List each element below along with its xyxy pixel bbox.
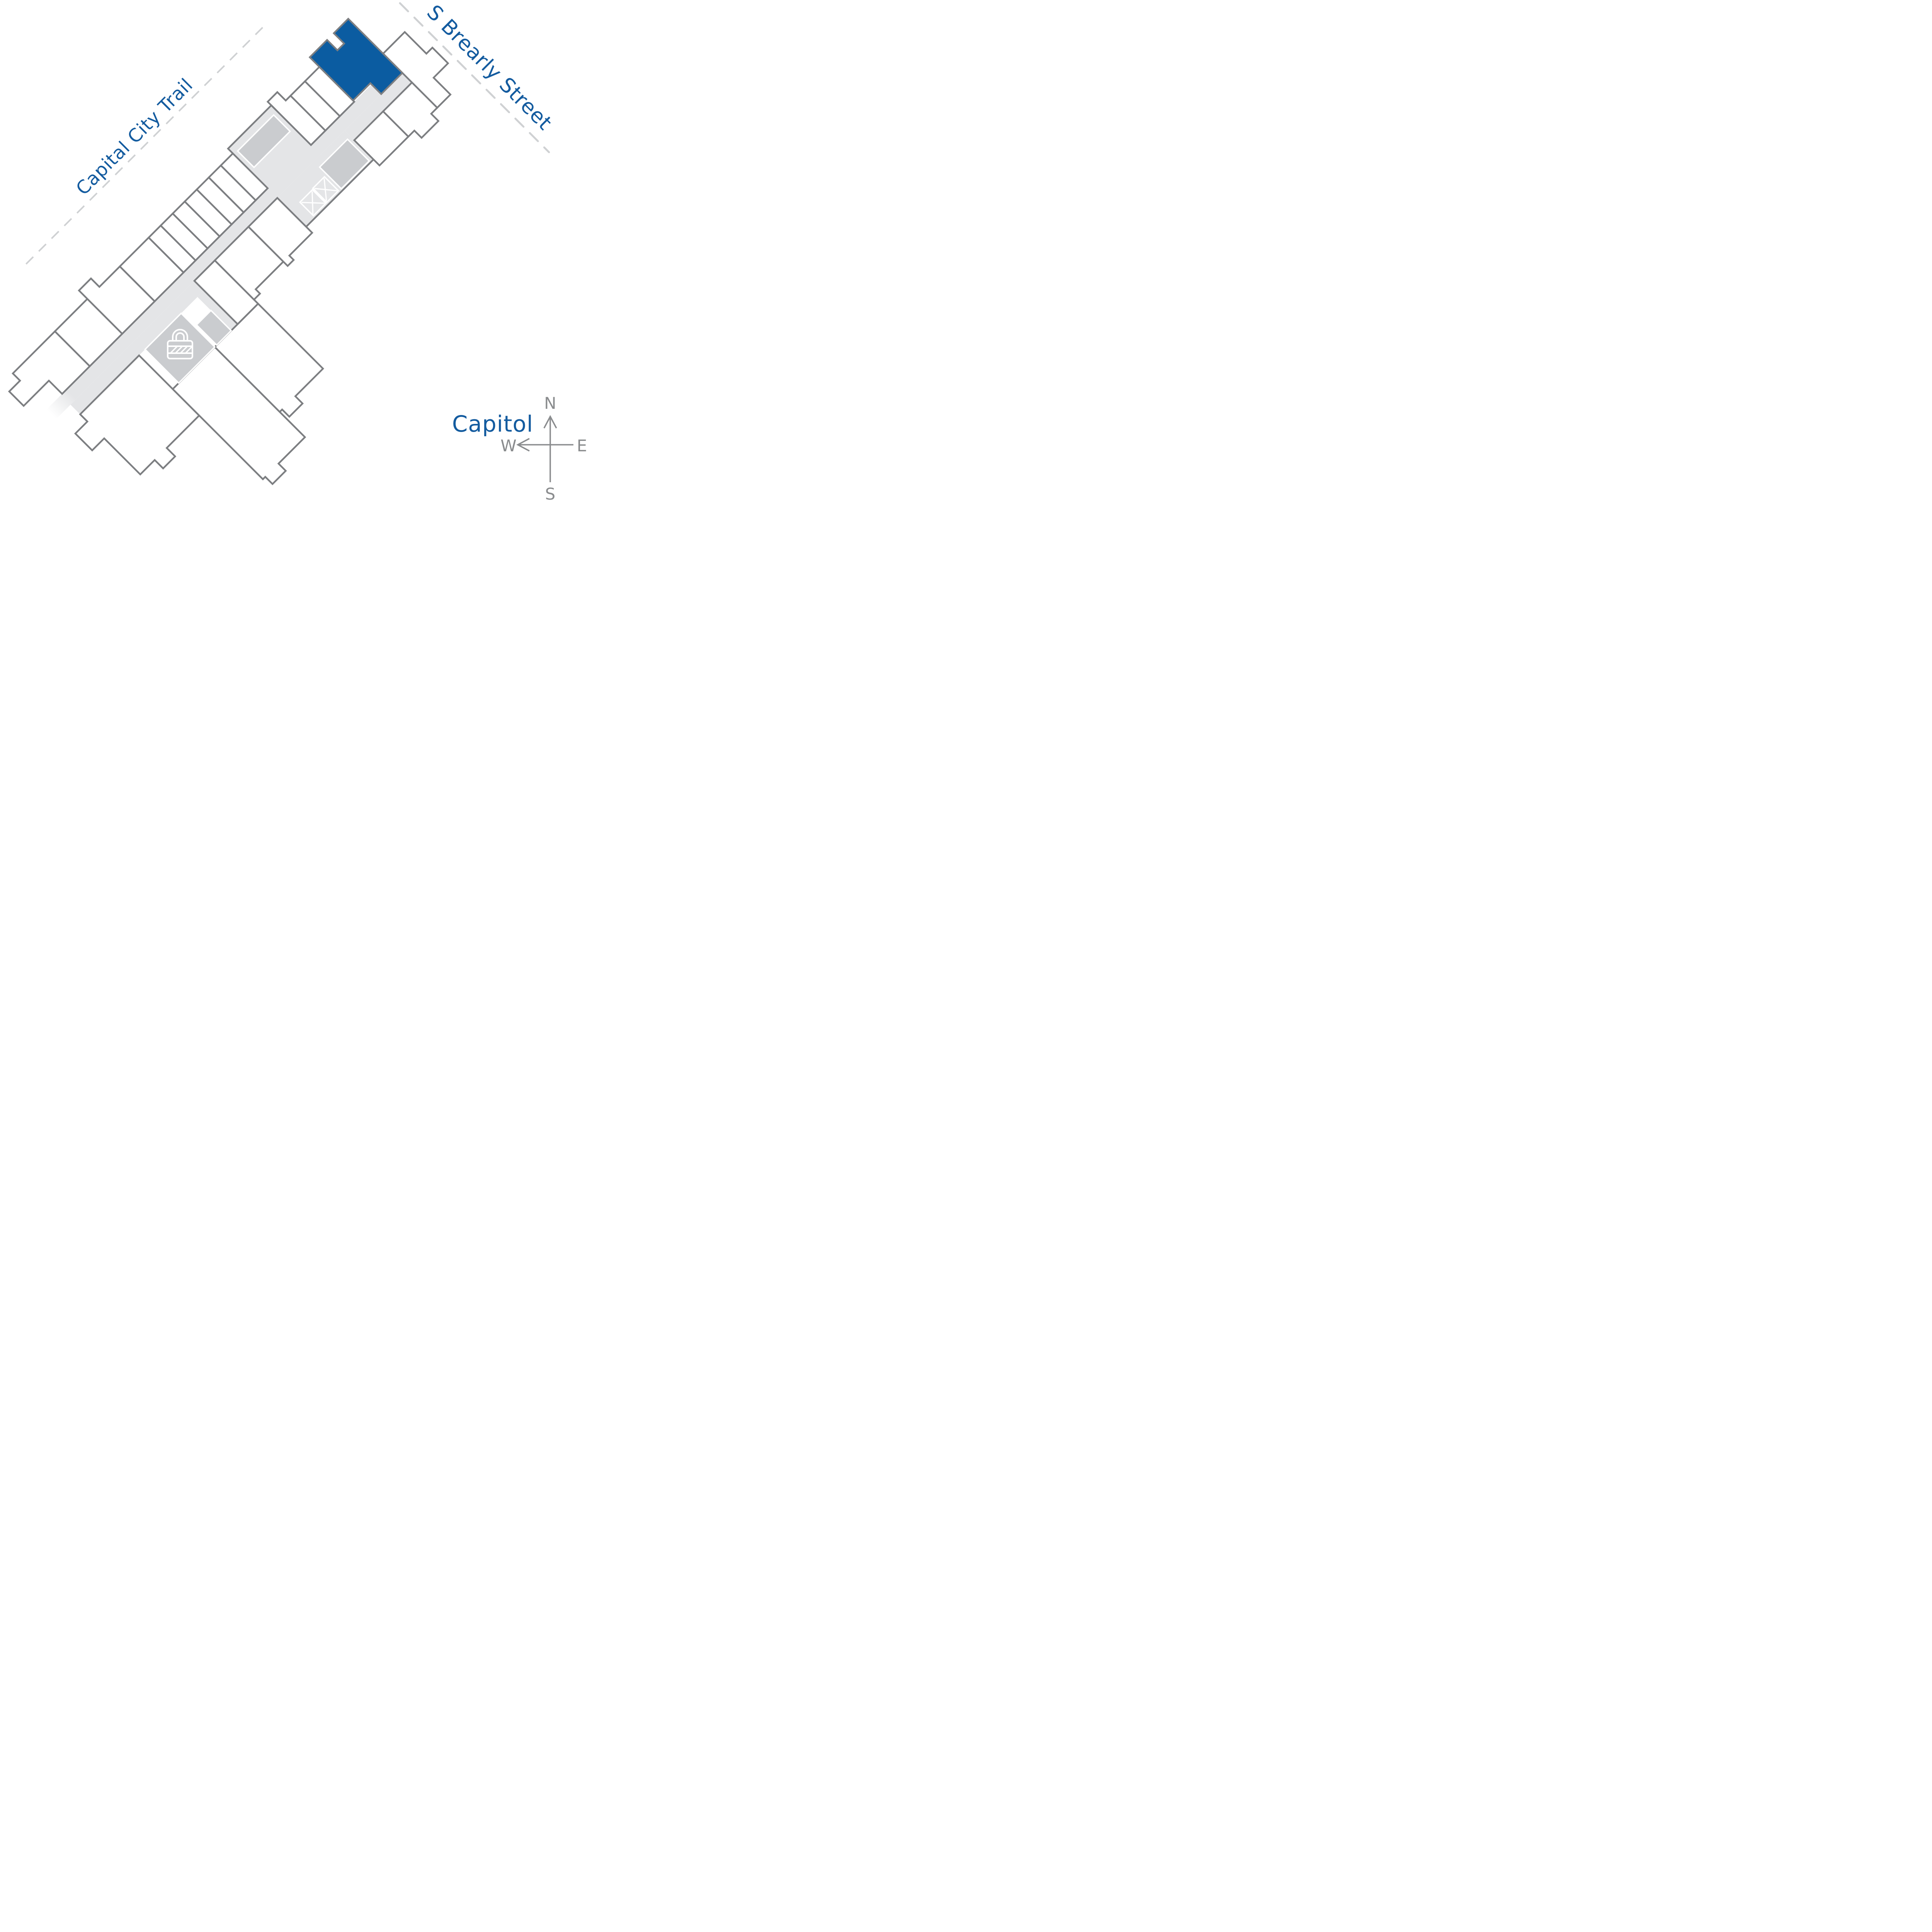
site-plan-canvas: Capital City Trail S Brearly Street Capi… (0, 0, 587, 502)
compass-north-label: N (544, 394, 556, 413)
compass-south-label: S (545, 485, 556, 502)
floor-plan-svg: Capital City Trail S Brearly Street Capi… (0, 0, 587, 502)
compass-east-label: E (577, 436, 587, 455)
capitol-label: Capitol (452, 411, 533, 437)
trail-label: Capital City Trail (72, 74, 197, 199)
compass-rose-icon: N S W E (500, 394, 587, 502)
compass-west-label: W (500, 436, 517, 455)
